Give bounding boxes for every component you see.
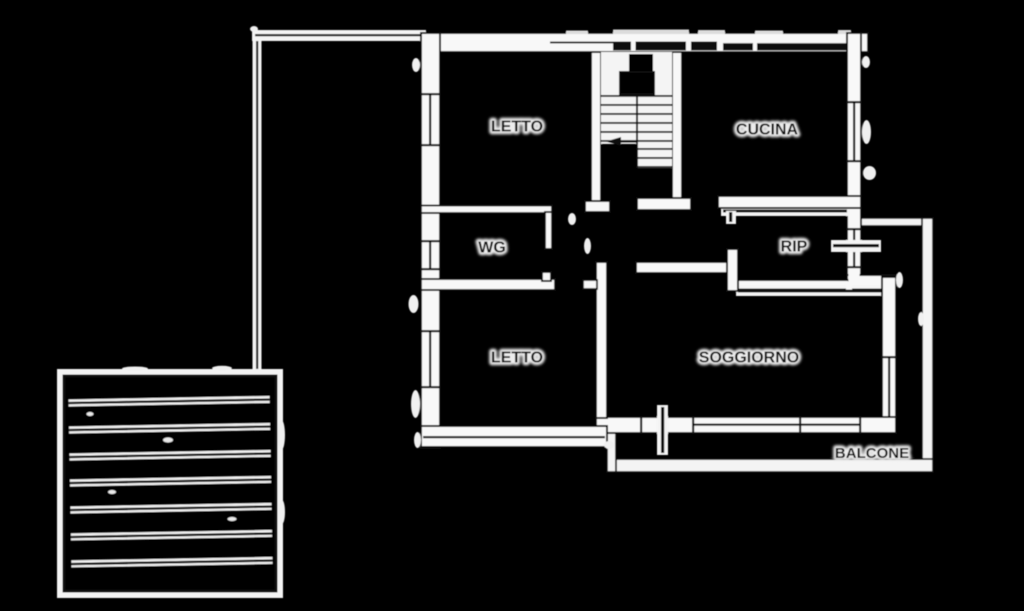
svg-text:CUCINA: CUCINA — [736, 122, 799, 139]
svg-text:RIP: RIP — [781, 239, 808, 256]
svg-text:LETTO: LETTO — [491, 119, 543, 136]
svg-text:LETTO: LETTO — [491, 350, 543, 367]
svg-text:SOGGIORNO: SOGGIORNO — [699, 350, 799, 367]
svg-text:WG: WG — [478, 240, 506, 257]
svg-text:BALCONE: BALCONE — [835, 445, 909, 462]
